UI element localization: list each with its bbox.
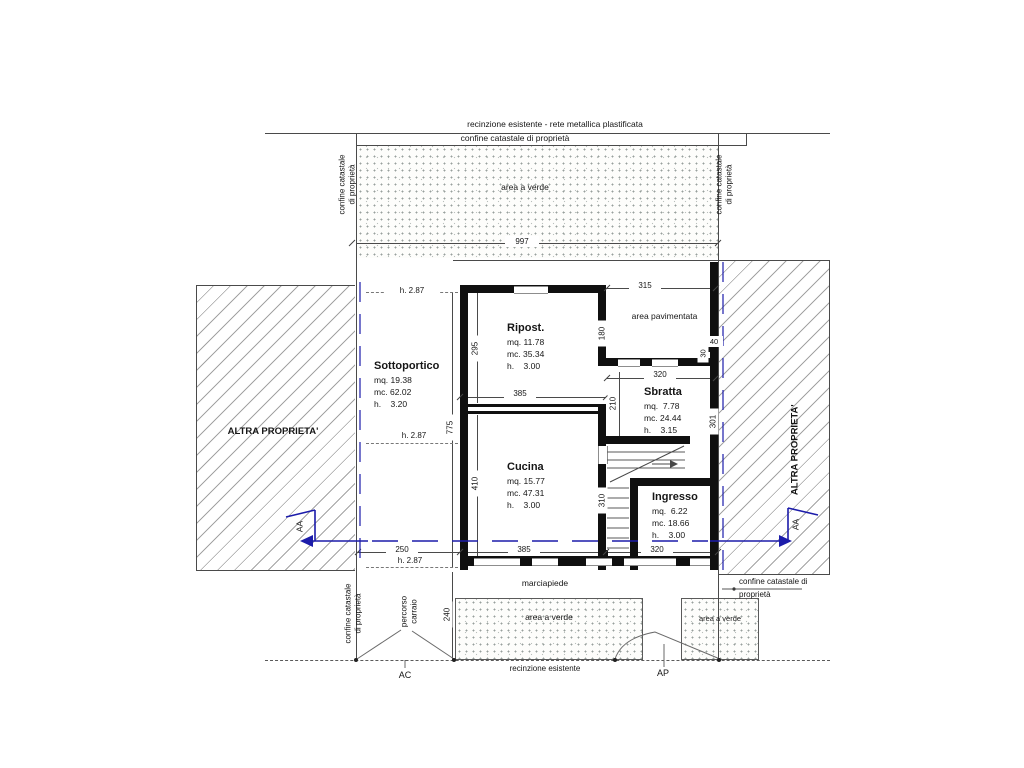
dim-180: 180: [597, 321, 608, 347]
room-h-cucina: h. 3.00: [507, 500, 540, 512]
cadastral-top-label: confine catastale di proprietà: [400, 133, 630, 144]
dim-240: 240: [442, 602, 453, 628]
dim-295: 295: [470, 336, 481, 362]
room-h-ripost: h. 3.00: [507, 361, 540, 373]
room-mq-sottoportico: mq. 19.38: [374, 375, 412, 387]
green-bottom-left-label: area a verde: [465, 612, 633, 623]
fence-bottom-label: recinzione esistente: [493, 663, 597, 674]
green-area-top-label: area a verde: [470, 182, 580, 193]
section-label-right: AA: [791, 515, 802, 535]
dim-385-mid: 385: [504, 388, 536, 399]
room-h-sbratta: h. 3.15: [644, 425, 677, 437]
gate-ap-label: AP: [650, 668, 676, 679]
gate-ap-icon: [615, 632, 720, 667]
room-mc-sottoportico: mc. 62.02: [374, 387, 411, 399]
floor-plan-drawing: recinzione esistente - rete metallica pl…: [0, 0, 1024, 768]
height-287-bottom: h. 2.87: [383, 555, 437, 566]
sidewalk-label: marciapiede: [493, 578, 597, 589]
room-mq-cucina: mq. 15.77: [507, 476, 545, 488]
room-mq-ripost: mq. 11.78: [507, 337, 544, 349]
room-mc-ingresso: mc. 18.66: [652, 518, 689, 530]
section-label-left: AA: [295, 517, 306, 537]
room-name-cucina: Cucina: [507, 461, 544, 474]
cadastral-right-vertical-label: confine catastale di proprietà: [715, 152, 734, 218]
dim-997: 997: [505, 236, 539, 247]
room-mq-ingresso: mq. 6.22: [652, 506, 687, 518]
room-name-ingresso: Ingresso: [652, 491, 698, 504]
room-name-ripost: Ripost.: [507, 322, 544, 335]
green-bottom-right-label: area a verde: [682, 613, 758, 624]
dim-320-bottom: 320: [641, 544, 673, 555]
room-mc-sbratta: mc. 24.44: [644, 413, 681, 425]
dim-250: 250: [386, 544, 418, 555]
room-mc-ripost: mc. 35.34: [507, 349, 544, 361]
dim-310: 310: [597, 488, 608, 514]
section-marker-right: [710, 508, 818, 547]
room-mc-cucina: mc. 47.31: [507, 488, 544, 500]
cadastral-bottom-right-label: confine catastale di proprietà: [739, 576, 823, 601]
dim-385-bottom: 385: [508, 544, 540, 555]
dim-210: 210: [608, 391, 619, 417]
room-mq-sbratta: mq. 7.78: [644, 401, 679, 413]
cadastral-left-vertical-label: confine catastale di proprietà: [338, 152, 357, 218]
paved-area-label: area pavimentata: [612, 311, 717, 322]
dim-315: 315: [629, 280, 661, 291]
dim-301: 301: [708, 409, 719, 435]
height-287-top: h. 2.87: [385, 285, 439, 296]
driveway-label: percorso carraio: [400, 590, 419, 634]
gate-ac-icon: [357, 630, 454, 668]
neighbor-right-label: ALTRA PROPRIETA': [790, 395, 800, 505]
dim-775: 775: [445, 415, 456, 441]
room-name-sottoportico: Sottoportico: [374, 360, 439, 373]
dim-410: 410: [470, 471, 481, 497]
gate-ac-label: AC: [392, 670, 418, 681]
room-h-sottoportico: h. 3.20: [374, 399, 407, 411]
cadastral-bottom-left-vertical-label: confine catastale di proprietà: [344, 581, 363, 647]
room-name-sbratta: Sbratta: [644, 386, 682, 399]
height-287-mid: h. 2.87: [387, 430, 441, 441]
plan-linework-overlay: [0, 0, 1024, 768]
dim-320-sbratta: 320: [644, 369, 676, 380]
dim-30: 30: [698, 345, 709, 363]
neighbor-left-label: ALTRA PROPRIETA': [198, 426, 348, 437]
room-h-ingresso: h. 3.00: [652, 530, 685, 542]
fence-top-label: recinzione esistente - rete metallica pl…: [370, 119, 740, 130]
